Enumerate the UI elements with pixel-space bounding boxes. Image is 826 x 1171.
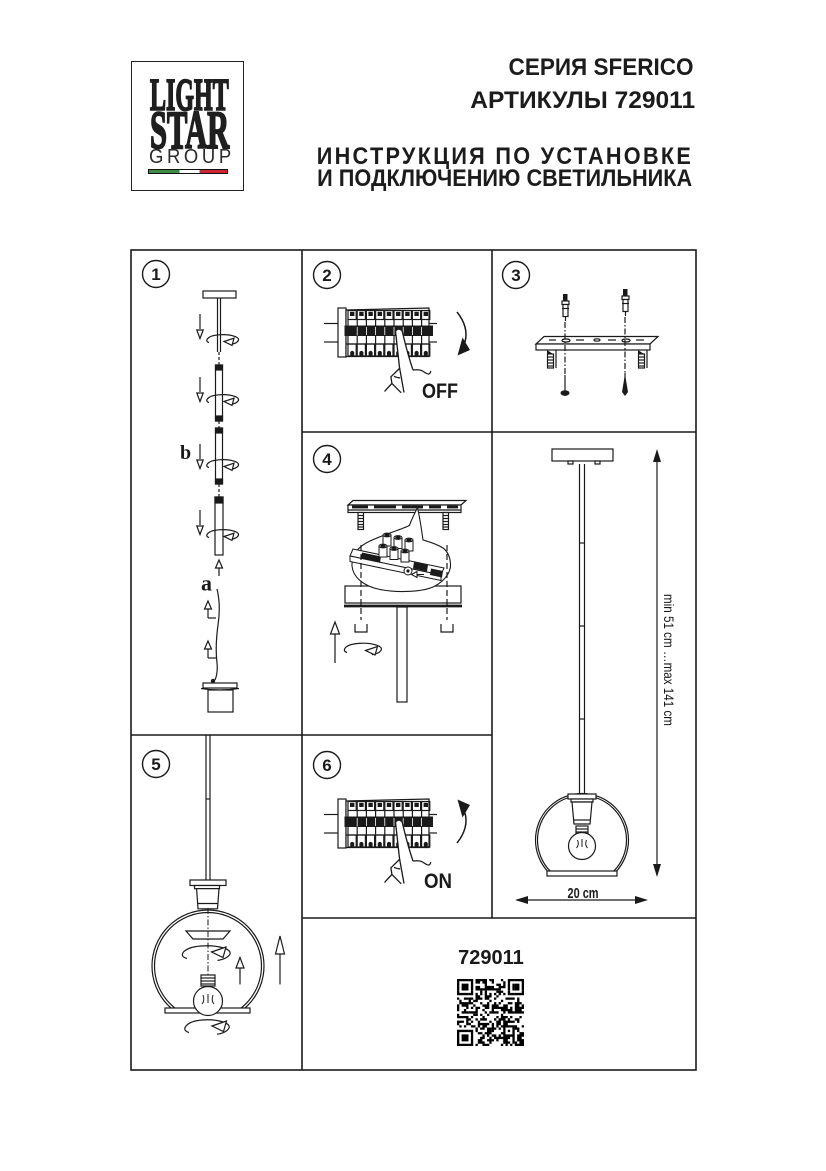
svg-text:a: a [201, 571, 212, 596]
svg-text:min 51 cm …max 141 cm: min 51 cm …max 141 cm [661, 594, 676, 726]
svg-text:1: 1 [151, 265, 160, 284]
svg-text:b: b [180, 442, 191, 464]
svg-text:20 cm: 20 cm [568, 886, 599, 902]
svg-text:OFF: OFF [422, 380, 458, 403]
svg-text:ON: ON [424, 870, 452, 893]
svg-text:729011: 729011 [458, 947, 524, 969]
svg-text:2: 2 [322, 266, 331, 285]
svg-text:4: 4 [322, 450, 332, 469]
svg-text:6: 6 [322, 756, 331, 775]
svg-text:5: 5 [151, 755, 160, 774]
svg-text:3: 3 [511, 266, 520, 285]
